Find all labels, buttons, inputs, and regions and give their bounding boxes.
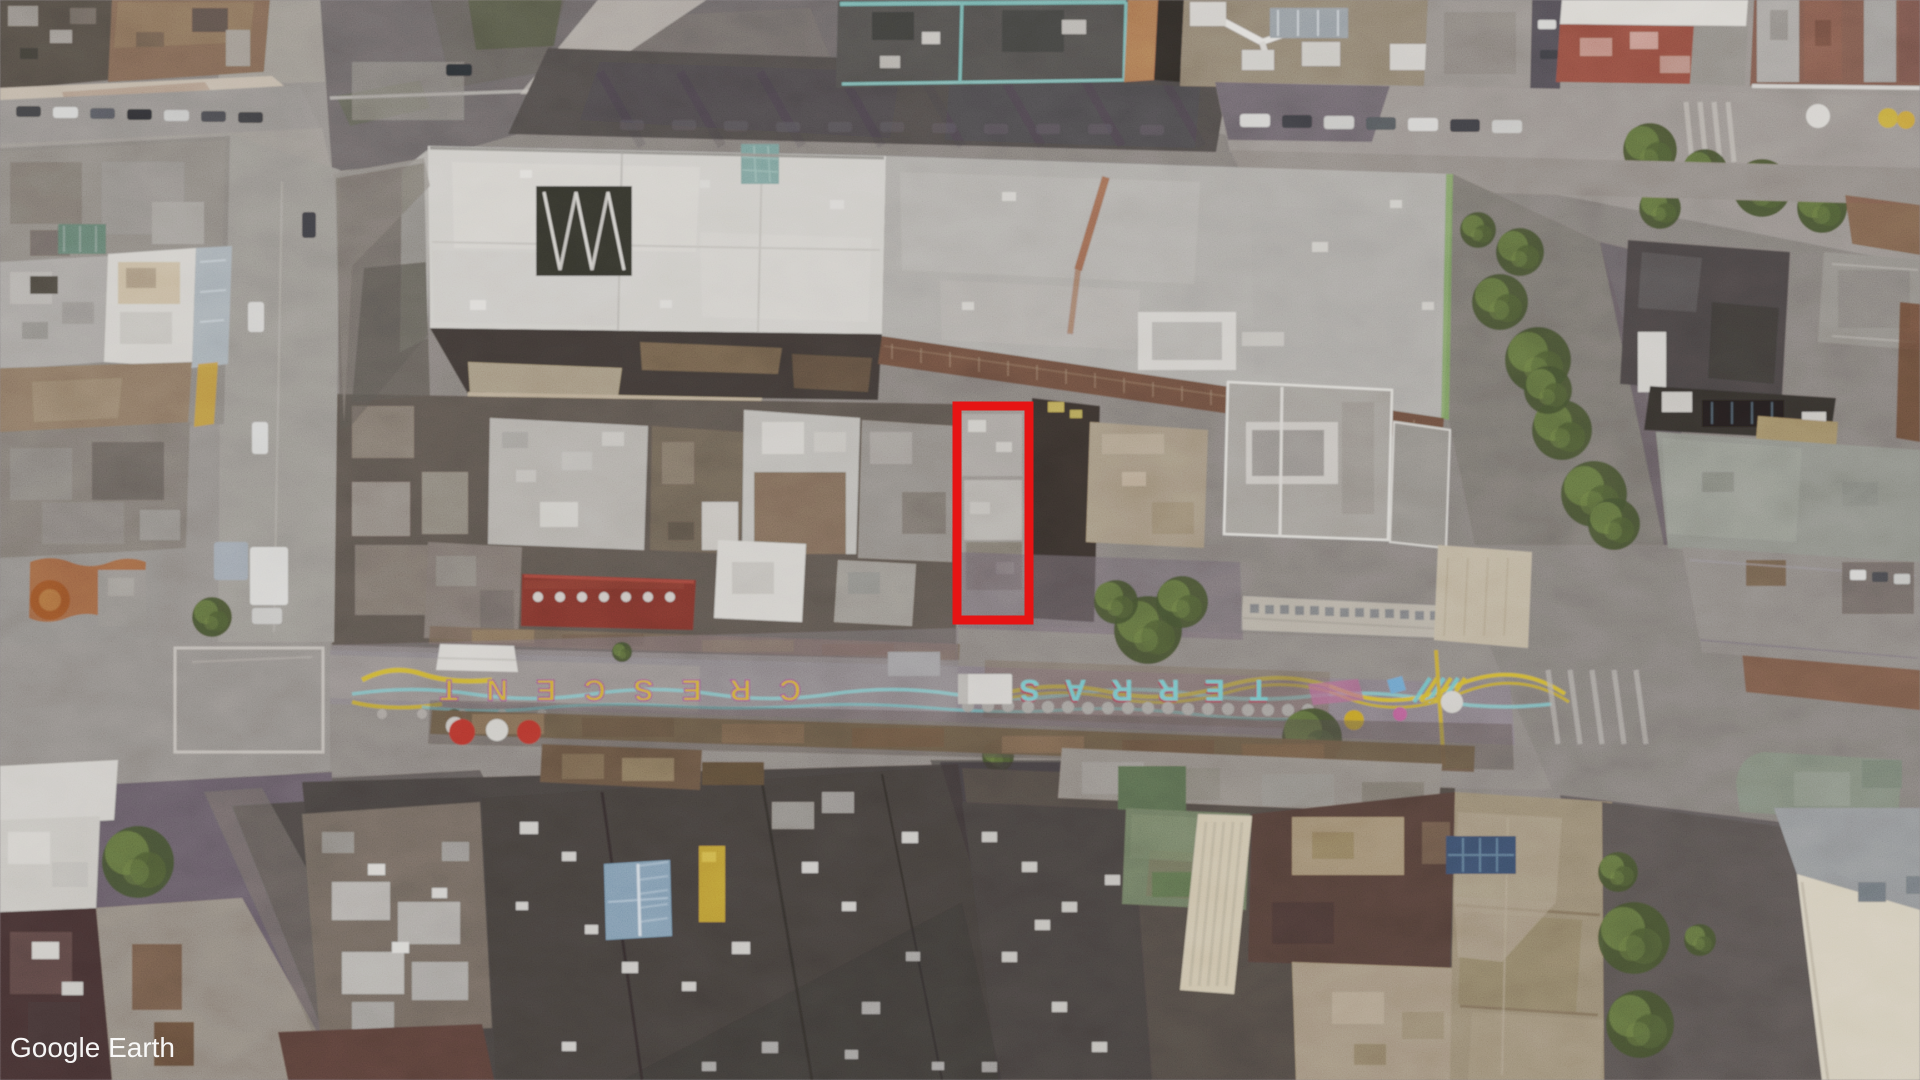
svg-text:Google Earth: Google Earth	[10, 1032, 175, 1063]
